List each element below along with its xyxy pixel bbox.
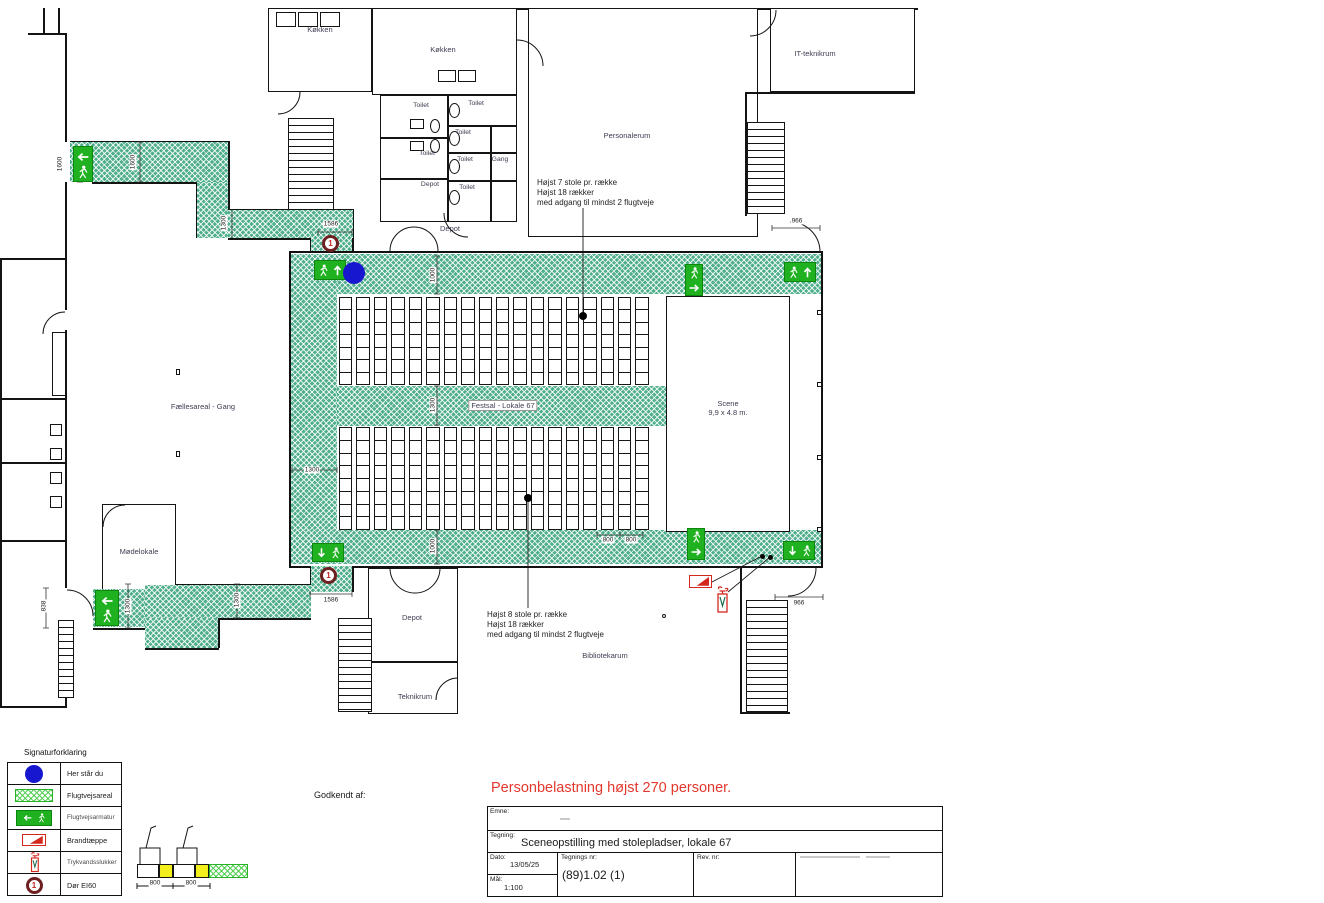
marker-circle [662,614,666,618]
legend-label: Flugtvejsarmatur [61,807,121,828]
stairs-top-left [288,118,334,210]
wall-box [50,424,62,436]
wall [447,152,517,154]
room-label-toilet: Toilet [455,129,471,136]
counter [320,12,340,27]
water-extinguisher-icon [8,852,61,873]
tegnings-nr-label: Tegnings nr: [561,854,597,861]
wall [0,706,67,708]
annotation-lower-seating: Højst 8 stole pr. række Højst 18 rækker … [487,610,604,641]
room-label-depot: Depot [421,181,439,188]
chair-detail-box [173,864,195,878]
dato-label: Dato: [490,854,506,861]
wall [490,125,492,222]
legend-title: Signaturforklaring [24,748,87,757]
door-stop [176,451,180,457]
room-teknikrum [368,662,458,714]
you-are-here-marker [343,262,365,284]
room-it-teknikrum [770,8,915,92]
wall [228,238,312,240]
fire-blanket-icon [689,575,712,588]
wall [352,568,354,592]
leader-dot [768,555,773,560]
dimension-label: 1300 [234,592,241,608]
room-label-moedelokale: Mødelokale [120,547,159,556]
door-ei60-marker: 1 [322,235,339,252]
dimension-label: 800 [602,537,615,544]
wall [65,182,67,310]
room-label-kitchen-b: Køkken [430,45,455,54]
legend-row: Flugtvejsareal [8,785,121,807]
scene-label: Scene [717,399,738,408]
fire-blanket-icon [8,830,61,851]
dimension-label: 966 [793,600,806,607]
door-stop [176,369,180,375]
wall [93,628,146,630]
title-block-line [487,852,943,853]
exit-sign-icon [783,541,815,560]
wall [218,618,311,620]
water-extinguisher-icon [714,586,730,614]
drawing-title: Sceneopstilling med stolepladser, lokale… [521,837,731,849]
seating-block-upper [339,297,649,385]
room-label-teknikrum: Teknikrum [398,692,432,701]
room-label-bibliotekarum: Bibliotekarum [582,651,627,660]
room-label-depot-bottom: Depot [402,613,422,622]
emne-label: Emne: [490,808,509,815]
wall-box [50,472,62,484]
seating-block-lower [339,427,649,530]
counter [438,70,456,82]
dimension-label: 966 [791,218,804,225]
dimension-label: 1600 [130,154,137,170]
room-label-toilet: Toilet [413,102,429,109]
escape-route-hall-bottom [291,530,821,564]
window-tick [817,382,822,387]
dimension-label: 1300 [430,397,437,413]
dimension-label: 1000 [430,267,437,283]
legend-row: Brandtæppe [8,830,121,852]
wall [0,398,65,400]
title-block-line [795,852,796,897]
door-ei60-icon: 1 [8,874,61,896]
wall [58,8,60,35]
dimension-label: 1586 [323,221,339,228]
dimension-label: 800 [185,880,198,887]
room-label-depot: Depot [440,224,460,233]
legend-table: Her står du Flugtvejsareal Flugtvejsarma… [7,762,122,896]
window-tick [817,310,822,315]
counter [458,70,476,82]
floor-plan: 1 1 Køkken Køkken Toilet Toilet Toilet T… [0,0,1324,903]
door-ei60-marker: 1 [320,567,337,584]
wc-fixture [449,190,460,205]
counter [276,12,296,27]
wall [65,35,67,142]
legend-row: 1 Dør EI60 [8,874,121,896]
dimension-label: 1000 [430,538,437,554]
logo-placeholder-mark [866,856,890,858]
dimension-label: 838 [41,600,48,613]
dimension-label: 1586 [323,597,339,604]
exit-sign-icon [73,146,93,182]
escape-route-bottom-left-a [145,585,311,618]
sink-fixture [410,119,424,129]
wall [740,712,790,714]
window-tick [817,527,822,532]
leader-dot [760,554,765,559]
wall [28,33,67,35]
tegnings-nr-value: (89)1.02 (1) [562,868,625,882]
legend-label: Her står du [61,763,121,784]
exit-sign-icon [314,260,346,280]
title-block-line [693,852,694,897]
counter [298,12,318,27]
dato-value: 13/05/25 [510,860,539,869]
chair-detail-escape-strip [209,864,248,878]
cabinet [52,332,66,396]
wall [0,462,65,464]
title-block-line [487,830,943,831]
dimension-label: 800 [625,537,638,544]
legend-label: Brandtæppe [61,830,121,851]
wall [745,92,915,94]
wall [0,258,67,260]
title-block-line [487,874,557,875]
occupancy-warning: Personbelastning højst 270 personer. [491,780,731,796]
wall [380,178,447,180]
stairs-bottom-right [746,600,788,712]
room-label-toilet: Toilet [457,156,473,163]
room-label-it-teknikrum: IT-teknikrum [794,49,835,58]
wall [447,95,449,222]
escape-route-hall-left [291,254,337,564]
escape-route-bottom-left-b [145,618,218,648]
legend-label: Flugtvejsareal [61,785,121,806]
exit-sign-icon [8,807,61,828]
wall [228,141,230,210]
wall [218,618,220,648]
stairs-top-right [747,122,785,214]
escape-route-hall-top [291,254,821,294]
wall [380,137,447,139]
room-label-festsal: Festsal - Lokale 67 [468,400,537,411]
maal-label: Mål: [490,876,502,883]
legend-row: Flugtvejsarmatur [8,807,121,829]
chair-detail-box [137,864,159,878]
room-label-personalerum: Personalerum [604,131,651,140]
dimension-label: 1300 [304,467,320,474]
wall [447,125,517,127]
evacuation-floor-plan-page: { "plan": { "rooms": { "kitchen_a": "Køk… [0,0,1324,903]
dimension-label: 800 [149,880,162,887]
wall [92,182,196,184]
exit-sign-icon [685,264,703,296]
wall-box [50,448,62,460]
wall [0,258,2,708]
emne-placeholder-mark [560,818,570,820]
tegning-label: Tegning: [490,832,515,839]
rev-nr-label: Rev. nr: [697,854,720,861]
exit-sign-icon [95,590,119,626]
you-are-here-dot-icon [8,763,61,784]
scene-size-label: 9,9 x 4.8 m. [708,408,747,417]
dimension-label: 1600 [57,156,64,172]
title-block-line [557,852,558,897]
wall [745,94,747,216]
leader-dot [579,312,587,320]
wall [740,568,742,714]
legend-row: Her står du [8,763,121,785]
window-tick [817,455,822,460]
dimension-label: 1300 [221,215,228,231]
logo-placeholder-mark [800,856,860,858]
escape-route-area-icon [8,785,61,806]
leader-dot [524,494,532,502]
stairs-bottom-center [338,618,372,712]
stairs-bottom-left [58,620,74,698]
exit-sign-icon [784,262,816,282]
wall [43,8,45,35]
room-label-faellesareal: Fællesareal - Gang [171,402,235,411]
legend-label: Trykvandsslukker [61,852,121,873]
wall-box [50,496,62,508]
exit-sign-icon [687,528,705,560]
dimension-label: 1300 [125,598,132,614]
wc-fixture [449,103,460,118]
chair-detail-yellow [159,864,173,878]
escape-route-top-left-a [70,142,228,182]
wall [0,540,65,542]
exit-sign-icon [312,543,344,562]
room-label-gang: Gang [492,156,509,163]
legend-label: Dør EI60 [61,874,121,896]
wall [447,180,517,182]
chair-detail-yellow [195,864,209,878]
wall [145,648,219,650]
maal-value: 1:100 [504,883,523,892]
annotation-upper-seating: Højst 7 stole pr. række Højst 18 rækker … [537,178,654,209]
room-label-toilet: Toilet [459,184,475,191]
approved-by-label: Godkendt af: [314,790,366,800]
room-label-toilet: Toilet [468,100,484,107]
legend-row: Trykvandsslukker [8,852,121,874]
room-label-toilet: Toilet [419,150,435,157]
wc-fixture [430,119,440,133]
